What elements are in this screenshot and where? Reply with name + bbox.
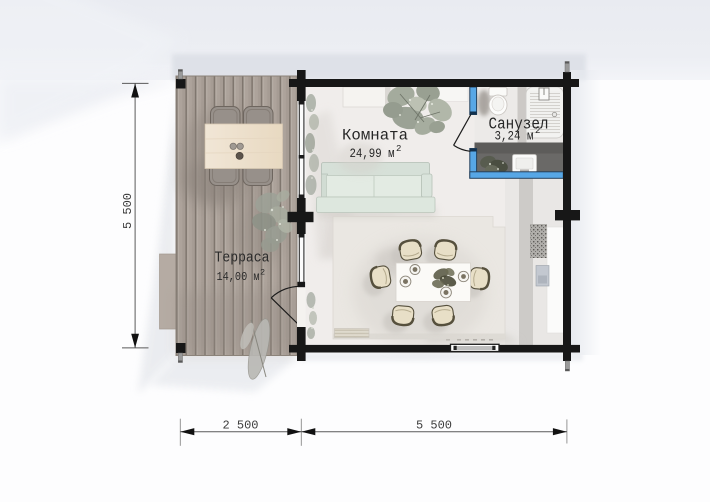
svg-text:3,24 м: 3,24 м (495, 130, 534, 144)
svg-text:2 500: 2 500 (222, 418, 258, 432)
svg-text:2: 2 (396, 144, 401, 154)
svg-text:2: 2 (260, 268, 265, 278)
svg-text:Комната: Комната (342, 127, 408, 145)
svg-text:5 500: 5 500 (121, 193, 135, 229)
svg-text:Терраса: Терраса (215, 250, 270, 267)
svg-text:14,00 м: 14,00 м (217, 270, 260, 284)
svg-text:5 500: 5 500 (416, 418, 452, 432)
svg-text:24,99 м: 24,99 м (350, 147, 395, 161)
svg-text:2: 2 (535, 126, 540, 136)
